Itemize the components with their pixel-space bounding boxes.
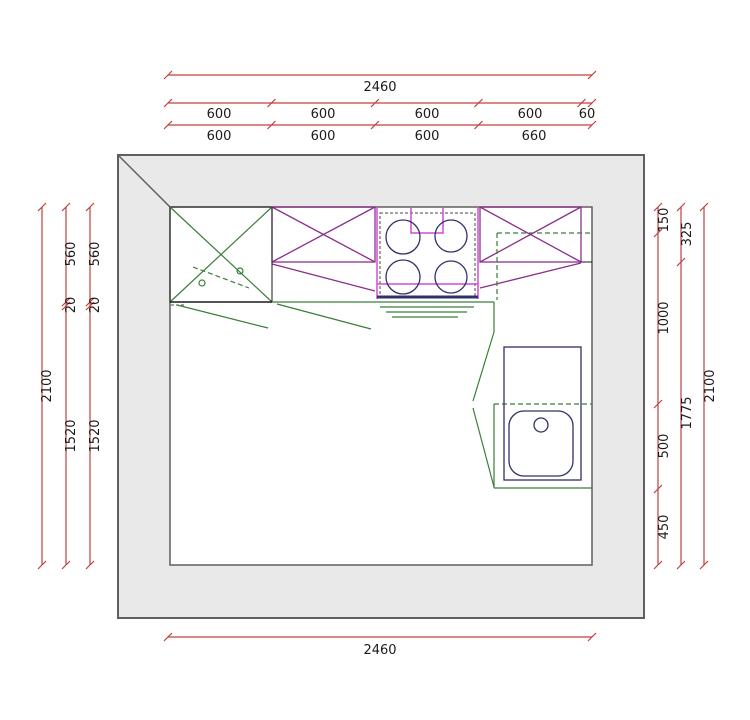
dim-label: 325 [680,222,695,247]
dim-label: 450 [657,515,672,540]
dim-top-row3: 600 600 600 660 [164,121,596,144]
dim-label: 2460 [363,80,396,95]
dim-label: 1520 [64,419,79,452]
dim-label: 1520 [88,419,103,452]
dim-label: 660 [522,129,547,144]
dim-label: 600 [311,107,336,122]
dim-label: 1000 [657,301,672,334]
dim-label: 1775 [680,396,695,429]
dim-left-mid: 560 20 1520 [62,203,79,569]
dim-label: 560 [88,242,103,267]
dim-label: 600 [311,129,336,144]
dim-label: 600 [207,129,232,144]
dim-label: 600 [415,129,440,144]
dim-right-overall: 2100 [700,203,718,569]
floor-plan-canvas: 2460 600 600 600 600 60 600 600 600 660 … [0,0,750,720]
dim-label: 60 [579,107,596,122]
dim-label: 2460 [363,643,396,658]
dim-label: 20 [88,297,103,314]
dim-label: 600 [518,107,543,122]
dim-bottom-overall: 2460 [164,633,596,658]
dim-label: 500 [657,434,672,459]
dim-left-overall: 2100 [38,203,55,569]
dim-top-row2: 600 600 600 600 60 [164,99,596,122]
dim-right-inner: 150 1000 500 450 [654,203,672,569]
dim-label: 2100 [703,369,718,402]
dim-left-inner: 560 20 1520 [86,203,103,569]
floor-area [170,207,592,565]
dim-label: 2100 [40,369,55,402]
dim-label: 150 [657,208,672,233]
floor-plan-drawing: 2460 600 600 600 600 60 600 600 600 660 … [0,0,750,720]
dim-label: 560 [64,242,79,267]
wall [118,155,644,618]
dim-label: 600 [415,107,440,122]
dim-right-mid: 325 1775 [677,203,695,569]
dim-label: 20 [64,297,79,314]
dim-label: 600 [207,107,232,122]
dim-top-overall: 2460 [164,71,596,95]
